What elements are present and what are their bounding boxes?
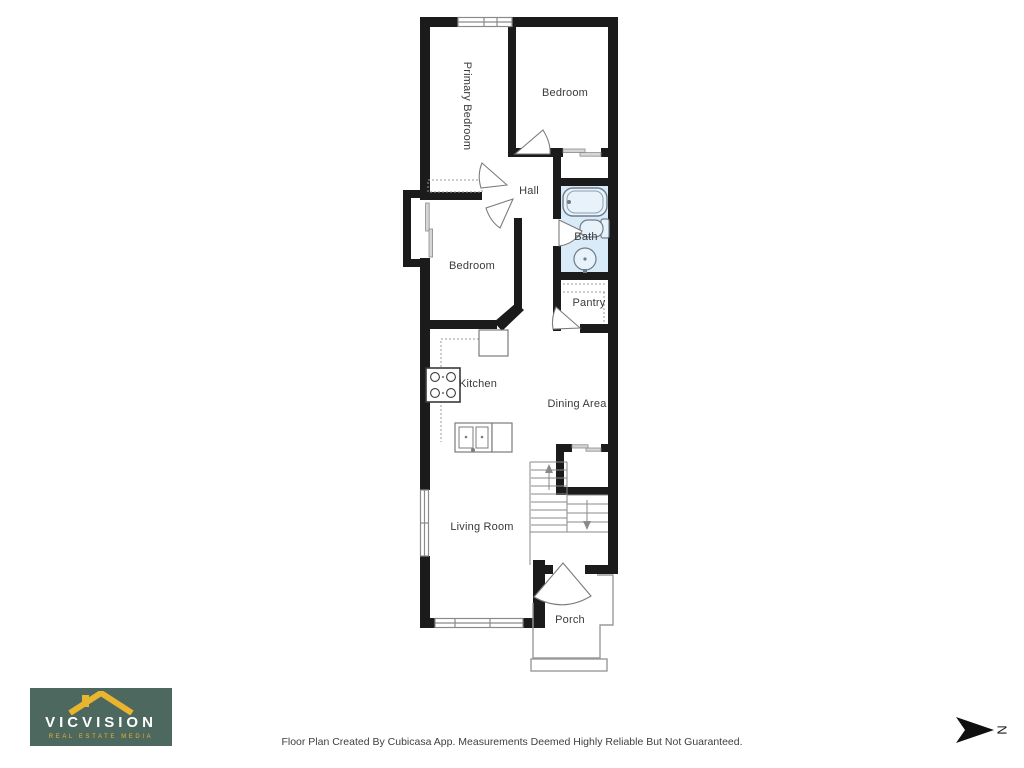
porch-step (531, 659, 607, 671)
window-top (458, 18, 512, 27)
room-label-hall: Hall (519, 185, 539, 197)
room-label-pantry: Pantry (573, 297, 606, 309)
roof-icon (64, 691, 138, 715)
north-arrow: N (948, 708, 1018, 752)
room-label-primary-bedroom: Primary Bedroom (461, 62, 473, 151)
stairs (530, 462, 608, 565)
room-label-living-room: Living Room (450, 521, 513, 533)
north-label: N (995, 725, 1010, 734)
brand-name: VICVISION (45, 716, 157, 730)
disclaimer-text: Floor Plan Created By Cubicasa App. Meas… (0, 736, 1024, 748)
sliding-door-entry-closet (572, 445, 601, 451)
refrigerator-icon (479, 330, 508, 356)
wardrobe-icon (428, 180, 482, 192)
room-label-bedroom-top: Bedroom (542, 87, 588, 99)
counter-box (492, 423, 512, 452)
north-arrow-icon (956, 717, 994, 743)
room-label-bath: Bath (574, 231, 597, 243)
door-primary-bedroom (479, 163, 507, 188)
kitchen-fixtures (426, 330, 512, 452)
stove-icon (426, 368, 460, 402)
sliding-door-bedroom-closet (563, 149, 601, 156)
bathtub-icon (563, 188, 607, 216)
door-pantry (552, 307, 580, 329)
room-label-porch: Porch (555, 614, 585, 626)
room-label-bedroom-middle: Bedroom (449, 260, 495, 272)
sliding-door-bump-closet (426, 203, 433, 257)
window-living-bottom (435, 619, 523, 628)
floor-plan-page: Primary Bedroom Bedroom Hall Bath Bedroo… (0, 0, 1024, 768)
room-label-dining-area: Dining Area (547, 398, 606, 410)
door-middle-bedroom (486, 199, 513, 228)
door-bedroom-topright (515, 130, 550, 154)
window-living-left (421, 490, 429, 556)
kitchen-sink-icon (455, 423, 492, 452)
floor-plan-drawing (0, 0, 1024, 768)
room-label-kitchen: Kitchen (459, 378, 497, 390)
